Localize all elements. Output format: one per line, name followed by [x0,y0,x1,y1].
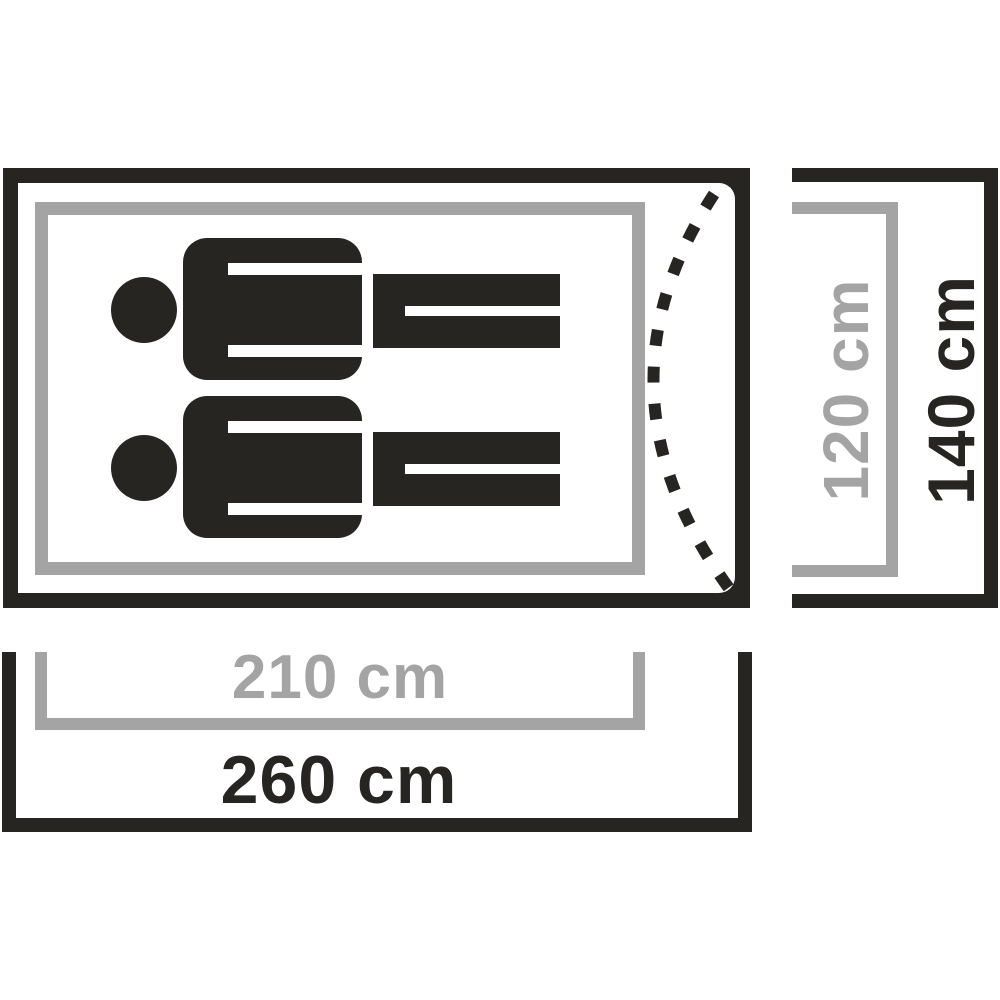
depth-inner-bracket-bottom [792,565,898,577]
inner-depth-label: 120 cm [814,278,878,501]
width-outer-bracket-left [2,652,16,832]
depth-outer-bracket-top [792,168,998,182]
tent-floorplan-diagram: 120 cm 140 cm 210 cm 260 cm [0,0,1000,1000]
width-inner-bracket-bar [35,718,645,730]
outer-width-label: 260 cm [221,746,458,814]
outer-depth-label: 140 cm [918,275,984,505]
width-outer-bracket-bar [2,818,752,832]
width-outer-bracket-right [738,652,752,832]
width-inner-bracket-right [633,652,645,730]
depth-outer-bracket-bottom [792,594,998,608]
depth-inner-bracket-side [886,202,898,577]
depth-inner-bracket-top [792,202,898,214]
inner-width-label: 210 cm [232,647,448,709]
